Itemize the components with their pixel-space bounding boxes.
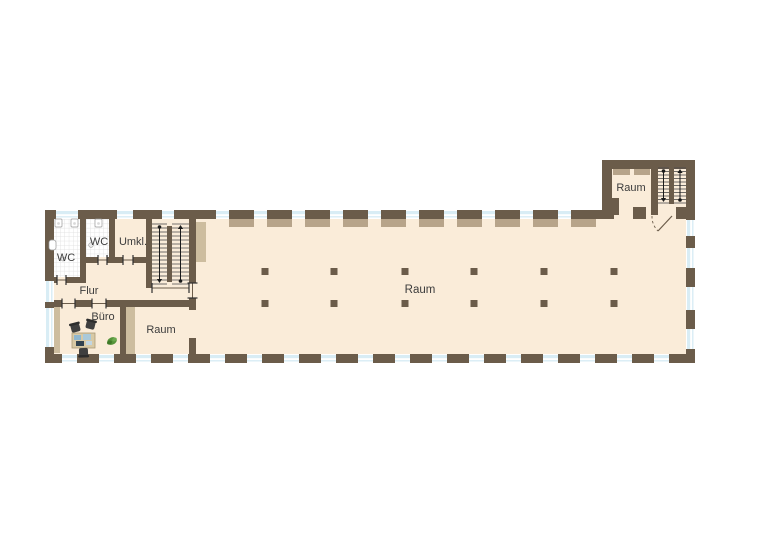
wall-segment	[146, 218, 152, 288]
column	[541, 300, 548, 307]
window-glass	[654, 355, 669, 358]
column	[471, 268, 478, 275]
window-glass	[216, 211, 229, 214]
window-glass	[136, 355, 151, 358]
column	[402, 300, 409, 307]
window-glass	[292, 211, 305, 214]
window-glass	[117, 211, 133, 214]
room-label-wc2: WC	[90, 236, 108, 248]
column	[611, 268, 618, 275]
desk-paper	[86, 341, 92, 345]
room-label-flur: Flur	[80, 285, 99, 297]
room-label-wc1: WC	[57, 252, 75, 264]
column	[262, 268, 269, 275]
window-glass	[56, 211, 78, 214]
window-glass	[46, 308, 49, 347]
column	[402, 268, 409, 275]
wall-segment	[189, 219, 196, 283]
window-lintel	[571, 219, 596, 227]
window-glass	[99, 355, 114, 358]
wall-segment	[633, 207, 646, 219]
wall-segment	[189, 338, 196, 354]
window-glass	[617, 355, 632, 358]
window-glass	[358, 355, 373, 358]
column	[331, 268, 338, 275]
desk-paper	[83, 334, 91, 340]
sink-basin	[97, 222, 100, 225]
desk-paper	[74, 335, 81, 340]
window-glass	[162, 211, 174, 214]
column	[611, 300, 618, 307]
window-glass	[687, 248, 690, 268]
wall-segment	[109, 219, 115, 263]
wall-segment	[106, 300, 196, 307]
room-label-umkl: Umkl.	[119, 236, 147, 248]
wall-segment	[651, 169, 658, 215]
window-glass	[406, 211, 419, 214]
wall-segment	[80, 257, 98, 263]
window-glass	[368, 211, 381, 214]
window-glass	[330, 211, 343, 214]
floorplan-svg: WC WC Umkl. Flur Büro Raum Raum Raum	[0, 0, 768, 543]
window-glass	[687, 329, 690, 349]
window-glass	[687, 287, 690, 310]
window-lintel	[495, 219, 520, 227]
wall-segment	[612, 198, 619, 215]
room-label-raum-klein: Raum	[146, 324, 175, 336]
window-glass	[543, 355, 558, 358]
window-glass	[284, 355, 299, 358]
window-lintel	[343, 219, 368, 227]
window-glass	[444, 211, 457, 214]
shaft	[126, 307, 135, 354]
desk-monitor	[76, 341, 84, 346]
floorplan-stage: WC WC Umkl. Flur Büro Raum Raum Raum	[0, 0, 768, 543]
window-lintel	[305, 219, 330, 227]
window-glass	[46, 281, 49, 302]
main-floor	[45, 210, 695, 363]
room-label-raum-annex: Raum	[616, 182, 645, 194]
window-glass	[254, 211, 267, 214]
window-glass	[687, 220, 690, 236]
sink-basin	[57, 222, 60, 225]
window-glass	[520, 211, 533, 214]
window-glass	[432, 355, 447, 358]
window-lintel	[419, 219, 444, 227]
wall-segment	[167, 226, 172, 282]
chair-back	[78, 355, 89, 358]
window-glass	[62, 355, 77, 358]
window-glass	[321, 355, 336, 358]
window-lintel	[457, 219, 482, 227]
toilet	[49, 240, 56, 250]
window-glass	[469, 355, 484, 358]
wall-segment	[107, 257, 123, 263]
shaft	[196, 222, 206, 262]
window-lintel	[533, 219, 558, 227]
window-glass	[482, 211, 495, 214]
column	[541, 268, 548, 275]
window-glass	[558, 211, 571, 214]
window-glass	[580, 355, 595, 358]
window-lintel	[267, 219, 292, 227]
wall-segment	[75, 300, 92, 307]
window-glass	[506, 355, 521, 358]
window-glass	[210, 355, 225, 358]
column	[262, 300, 269, 307]
wall-segment	[120, 307, 126, 354]
window-glass	[173, 355, 188, 358]
column	[471, 300, 478, 307]
sink-basin	[73, 222, 76, 225]
window-lintel	[229, 219, 254, 227]
window-glass	[247, 355, 262, 358]
window-lintel	[613, 169, 630, 175]
column	[331, 300, 338, 307]
office-chair	[78, 348, 89, 358]
window-glass	[395, 355, 410, 358]
wall-segment	[669, 164, 674, 204]
wall-segment	[80, 219, 86, 283]
window-lintel	[634, 169, 650, 175]
room-label-raum-halle: Raum	[405, 284, 436, 296]
wall-segment	[66, 277, 80, 283]
window-lintel	[381, 219, 406, 227]
room-label-buero: Büro	[91, 311, 114, 323]
